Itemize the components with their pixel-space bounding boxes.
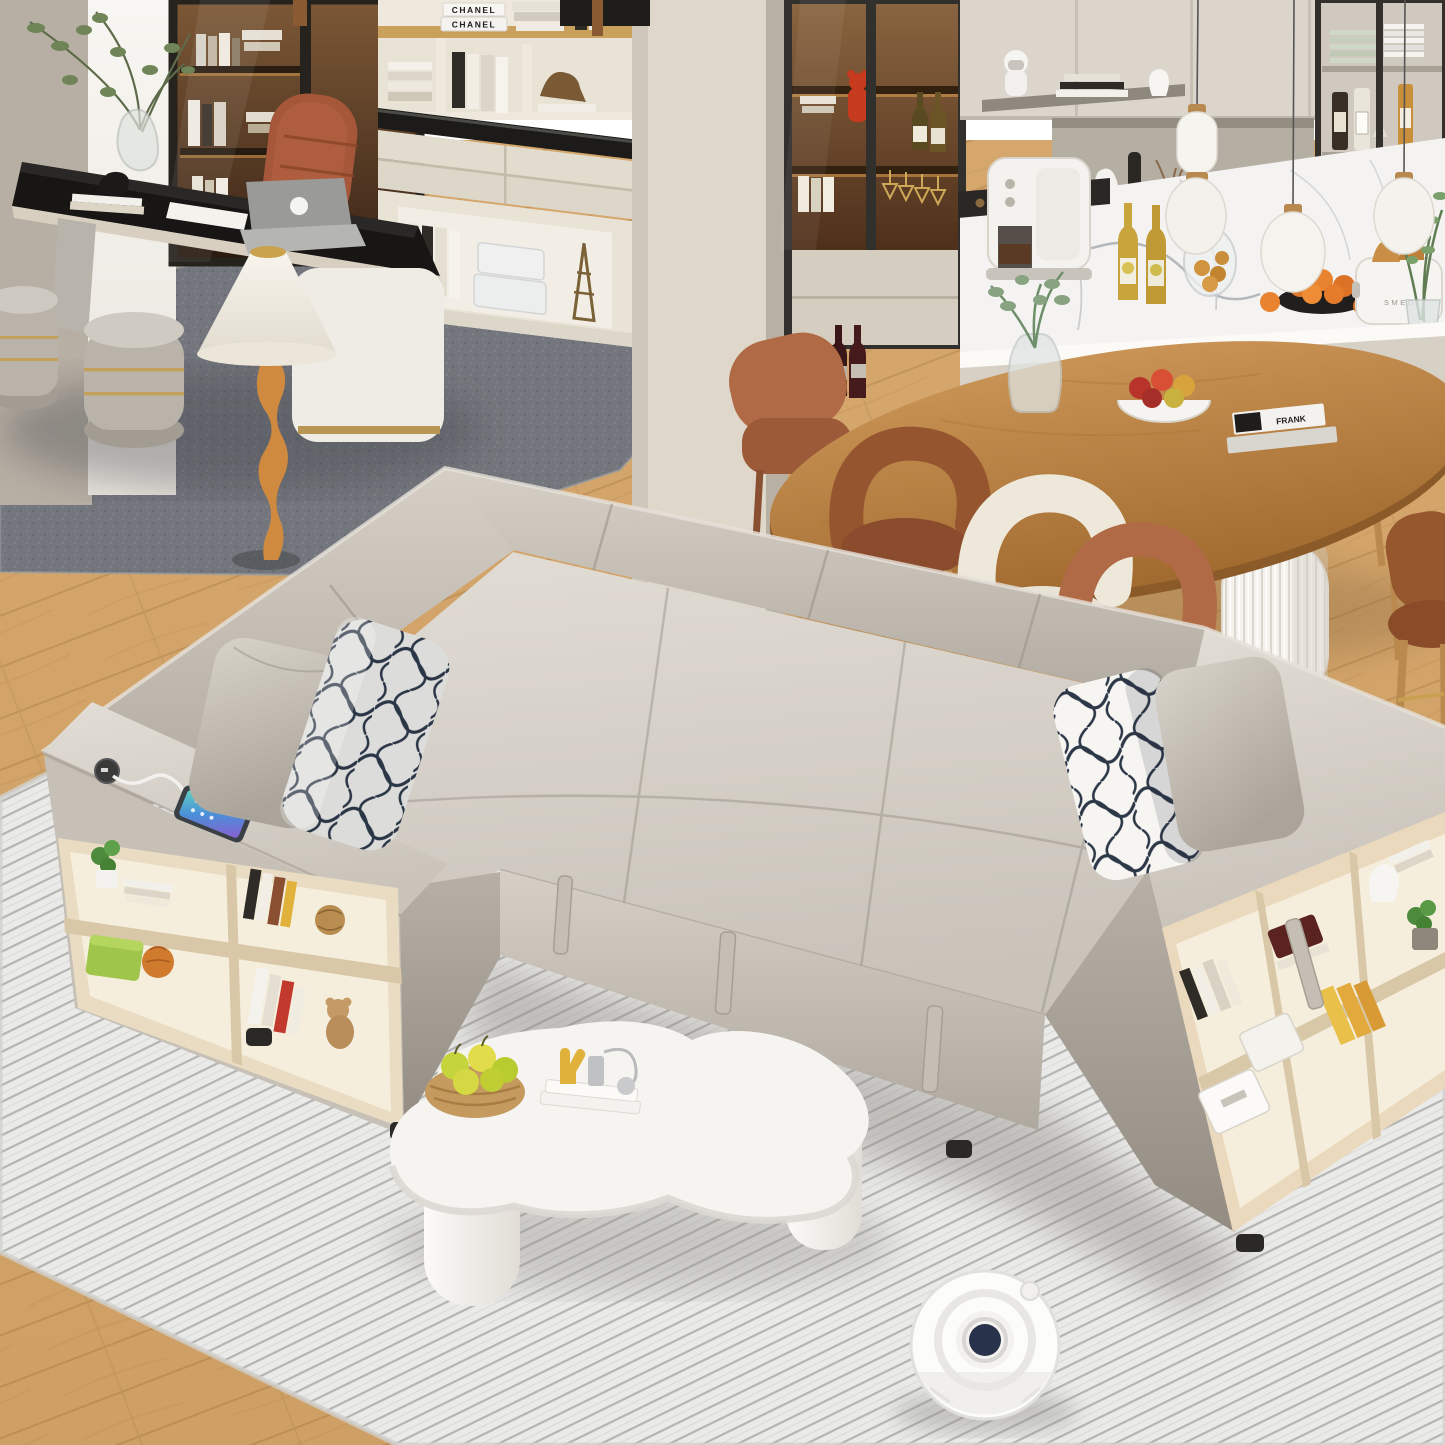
vacuum-center-button [969,1324,1001,1356]
red-bear-figurine [847,70,869,122]
living-room-photo: CHANEL CHANEL [0,0,1445,1445]
shelf-middle-bay [378,38,632,118]
coffee-table [385,1021,895,1306]
coffee-machine [986,158,1092,280]
leather-strap [293,0,307,26]
pouf-1 [0,286,58,410]
hanging-strap [592,0,603,36]
teddy-bear [326,998,355,1050]
clear-storage-boxes [474,242,546,315]
usb-port [101,768,108,772]
silver-cup [588,1056,604,1086]
chanel-books: CHANEL CHANEL [441,3,507,31]
book-spine-text-bottom: CHANEL [452,20,496,30]
wine-display-cabinet [780,0,962,345]
wall-shelf-black [560,0,650,26]
astronaut-figurine [1004,50,1028,96]
scene-canvas: CHANEL CHANEL [0,0,1445,1445]
book-spine-text-top: CHANEL [452,5,496,15]
vacuum-sensor [1021,1282,1039,1300]
ribbed-vase [1149,69,1169,96]
coffee-table-top [390,1021,869,1220]
pouf-2 [84,312,184,448]
